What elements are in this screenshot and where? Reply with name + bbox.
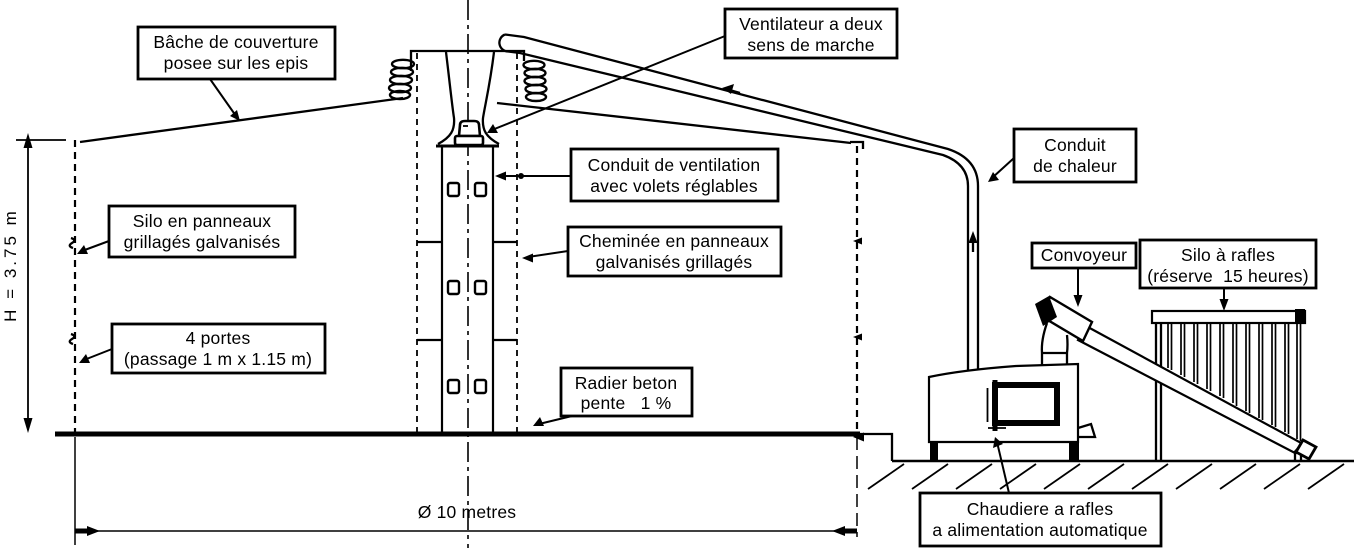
svg-text:Conduit: Conduit xyxy=(1044,135,1106,155)
svg-text:4 portes: 4 portes xyxy=(186,328,251,348)
svg-text:grillagés galvanisés: grillagés galvanisés xyxy=(124,232,281,252)
svg-text:a alimentation automatique: a alimentation automatique xyxy=(932,520,1147,540)
svg-text:sens de marche: sens de marche xyxy=(747,35,874,55)
svg-text:Ventilateur a deux: Ventilateur a deux xyxy=(739,14,883,34)
svg-text:Radier beton: Radier beton xyxy=(575,373,678,393)
svg-text:Conduit de ventilation: Conduit de ventilation xyxy=(588,155,761,175)
svg-text:Chaudiere a rafles: Chaudiere a rafles xyxy=(967,499,1114,519)
svg-text:Silo en panneaux: Silo en panneaux xyxy=(133,211,271,231)
svg-text:Bâche de couverture: Bâche de couverture xyxy=(153,32,318,52)
svg-text:(réserve 15 heures): (réserve 15 heures) xyxy=(1147,266,1309,286)
svg-text:(passage 1 m x 1.15 m): (passage 1 m x 1.15 m) xyxy=(124,349,312,369)
svg-text:de chaleur: de chaleur xyxy=(1033,156,1117,176)
svg-text:posee sur les epis: posee sur les epis xyxy=(164,53,309,73)
svg-text:Silo à rafles: Silo à rafles xyxy=(1181,245,1275,265)
svg-text:H = 3.75 m: H = 3.75 m xyxy=(1,208,20,322)
svg-text:pente 1 %: pente 1 % xyxy=(581,393,672,413)
svg-text:Cheminée en panneaux: Cheminée en panneaux xyxy=(579,231,769,251)
svg-text:Convoyeur: Convoyeur xyxy=(1041,245,1127,265)
svg-text:Ø 10 metres: Ø 10 metres xyxy=(418,502,517,522)
svg-text:avec volets réglables: avec volets réglables xyxy=(590,176,758,196)
svg-text:galvanisés grillagés: galvanisés grillagés xyxy=(596,252,753,272)
